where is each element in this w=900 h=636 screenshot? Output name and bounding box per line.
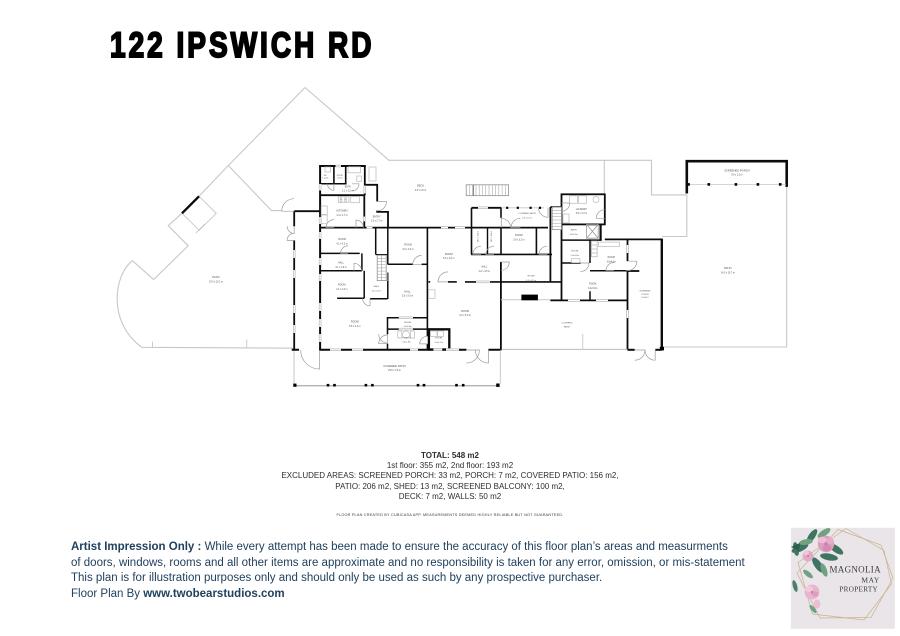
svg-text:ROOM: ROOM — [571, 251, 578, 253]
svg-text:WC: WC — [324, 175, 328, 177]
svg-text:1.2x1.6: 1.2x1.6 — [337, 178, 343, 180]
svg-text:ROOM: ROOM — [338, 238, 345, 241]
svg-text:3.0x4.0m: 3.0x4.0m — [606, 261, 616, 263]
svg-text:WC 1.0x2.4: WC 1.0x2.4 — [491, 230, 493, 241]
svg-text:5.0 x 4.0 m: 5.0 x 4.0 m — [443, 258, 454, 260]
svg-text:2.0 x 4.5 m: 2.0 x 4.5 m — [479, 271, 490, 273]
svg-text:2.1 x 3.2 m: 2.1 x 3.2 m — [342, 191, 353, 193]
svg-text:PATIO: PATIO — [212, 275, 219, 279]
svg-text:3.5 x 3.0 m: 3.5 x 3.0 m — [402, 296, 413, 298]
svg-text:ROOM: ROOM — [528, 276, 535, 278]
svg-text:6.0 x 5.0 m: 6.0 x 5.0 m — [459, 315, 470, 317]
svg-text:ROOM: ROOM — [435, 338, 442, 340]
svg-text:29.5 x 3.6 m: 29.5 x 3.6 m — [388, 370, 401, 372]
svg-text:HALL: HALL — [374, 285, 380, 288]
svg-text:3.2 x 4.2 m: 3.2 x 4.2 m — [526, 280, 536, 282]
svg-text:14.3 x 10.7 m: 14.3 x 10.7 m — [721, 273, 735, 275]
svg-text:KITCHEN: KITCHEN — [337, 210, 348, 213]
svg-text:PORCH: PORCH — [641, 294, 649, 296]
svg-text:LAUNDRY: LAUNDRY — [576, 208, 588, 211]
svg-text:BATH: BATH — [571, 229, 577, 232]
svg-text:ROOM: ROOM — [351, 321, 359, 324]
svg-text:5.5 x 4.4 m: 5.5 x 4.4 m — [349, 326, 360, 328]
svg-text:ROOM: ROOM — [338, 284, 345, 287]
svg-text:2.4x1.9m: 2.4x1.9m — [571, 255, 580, 257]
svg-text:ROOM: ROOM — [337, 175, 343, 177]
svg-text:ROOM: ROOM — [515, 234, 522, 237]
svg-text:19.5 x 10.1 m: 19.5 x 10.1 m — [209, 282, 223, 284]
svg-text:4.4 x 4.7 m: 4.4 x 4.7 m — [336, 215, 347, 217]
svg-text:BATH: BATH — [345, 185, 351, 188]
svg-text:SCREENED PORCH: SCREENED PORCH — [724, 168, 749, 172]
svg-text:2.2x1.8m: 2.2x1.8m — [402, 342, 411, 344]
svg-text:COVERED: COVERED — [562, 322, 573, 324]
svg-text:4.1 x 1.9 m: 4.1 x 1.9 m — [335, 267, 346, 269]
svg-text:HALL: HALL — [481, 266, 487, 269]
svg-text:ROOM: ROOM — [445, 253, 453, 256]
svg-text:2.0x1.7m: 2.0x1.7m — [435, 342, 444, 344]
svg-text:HALL: HALL — [338, 262, 344, 265]
svg-text:4.9 x 4.6 m: 4.9 x 4.6 m — [415, 190, 426, 192]
svg-text:4.9 x 2.0 m: 4.9 x 2.0 m — [522, 218, 532, 220]
svg-text:9.9 x 2.2 m: 9.9 x 2.2 m — [731, 175, 742, 177]
svg-text:WC 1.0x2.4: WC 1.0x2.4 — [478, 230, 480, 241]
svg-text:1.9x1.5m: 1.9x1.5m — [569, 234, 578, 236]
svg-text:3.0 x 4.0 m: 3.0 x 4.0 m — [402, 249, 413, 251]
svg-text:ROOM: ROOM — [589, 284, 596, 286]
svg-text:COVERED PATIO: COVERED PATIO — [383, 364, 406, 368]
svg-text:COVERED PATIO: COVERED PATIO — [518, 212, 536, 215]
svg-text:1.4 x 2.4 m: 1.4 x 2.4 m — [371, 290, 381, 292]
svg-text:ROOM: ROOM — [404, 244, 411, 247]
svg-text:SCREENED: SCREENED — [639, 291, 651, 293]
svg-text:3.9 x 3.2 m: 3.9 x 3.2 m — [513, 240, 524, 242]
svg-text:4.1 x 4.3 m: 4.1 x 4.3 m — [336, 289, 347, 291]
svg-text:ROOM: ROOM — [461, 310, 469, 313]
svg-text:PORCH: PORCH — [403, 337, 411, 339]
svg-text:PATIO: PATIO — [564, 326, 571, 329]
svg-text:4.1 x 4.2 m: 4.1 x 4.2 m — [336, 244, 347, 246]
svg-text:MAY: MAY — [861, 575, 879, 584]
svg-text:ENTRY: ENTRY — [373, 216, 381, 218]
svg-text:DECK: DECK — [417, 184, 424, 188]
svg-text:2.0 x 2.7 m: 2.0 x 2.7 m — [371, 221, 382, 223]
svg-text:ROOM: ROOM — [608, 257, 615, 259]
svg-text:PATIO: PATIO — [724, 266, 731, 270]
svg-text:1.0x1.6: 1.0x1.6 — [322, 178, 328, 180]
svg-text:3.9 x 2.4 m: 3.9 x 2.4 m — [576, 213, 587, 215]
svg-text:10.4x3.2: 10.4x3.2 — [641, 297, 648, 299]
svg-text:ROOM: ROOM — [404, 322, 411, 324]
svg-text:2.5x2.0m: 2.5x2.0m — [403, 326, 412, 328]
svg-text:3.4x3.0m: 3.4x3.0m — [588, 288, 598, 290]
svg-text:HALL: HALL — [405, 290, 412, 293]
